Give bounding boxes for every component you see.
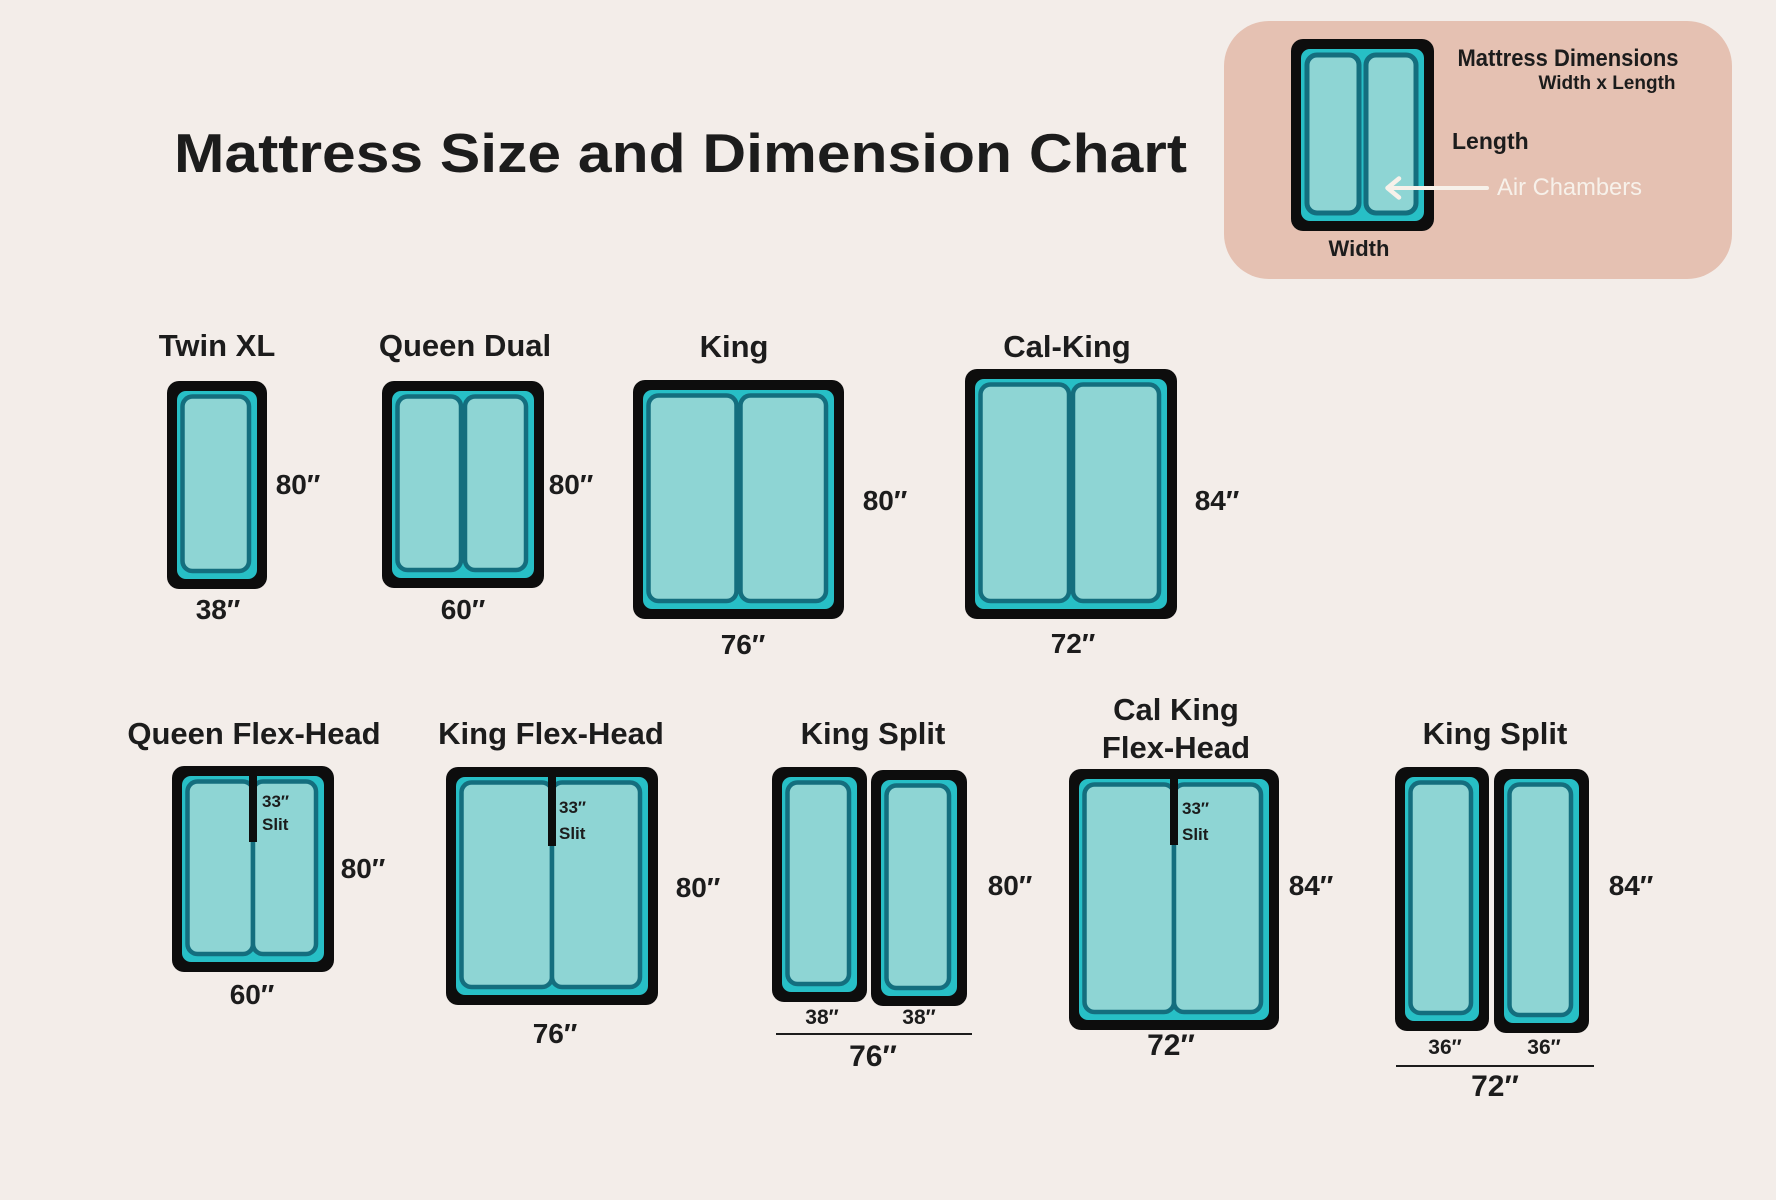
svg-text:80″: 80″ [341,853,386,884]
svg-text:Mattress Dimensions: Mattress Dimensions [1458,45,1679,72]
svg-text:33″: 33″ [1182,799,1209,818]
svg-text:33″: 33″ [559,798,586,817]
svg-text:38″: 38″ [902,1006,935,1029]
svg-text:Mattress Size and Dimension Ch: Mattress Size and Dimension Chart [174,122,1187,184]
svg-text:80″: 80″ [276,469,321,500]
svg-text:72″: 72″ [1051,628,1096,659]
svg-text:Width: Width [1329,236,1390,261]
svg-text:Twin XL: Twin XL [159,328,276,363]
svg-text:King Flex-Head: King Flex-Head [438,716,664,751]
svg-text:80″: 80″ [988,870,1033,901]
svg-text:Slit: Slit [1182,825,1209,844]
svg-text:Queen Flex-Head: Queen Flex-Head [127,716,380,751]
svg-text:72″: 72″ [1471,1070,1519,1103]
svg-text:76″: 76″ [533,1018,578,1049]
svg-text:76″: 76″ [849,1040,897,1073]
svg-text:60″: 60″ [441,594,486,625]
svg-text:Length: Length [1452,128,1529,154]
svg-text:84″: 84″ [1609,870,1654,901]
svg-text:King: King [700,329,769,364]
svg-text:36″: 36″ [1428,1036,1461,1059]
svg-text:80″: 80″ [676,872,721,903]
svg-text:33″: 33″ [262,792,289,811]
svg-text:38″: 38″ [805,1006,838,1029]
svg-text:60″: 60″ [230,979,275,1010]
svg-text:Cal-King: Cal-King [1003,329,1130,364]
svg-text:King Split: King Split [1423,716,1568,751]
svg-text:Queen Dual: Queen Dual [379,328,551,363]
svg-text:84″: 84″ [1289,870,1334,901]
svg-text:84″: 84″ [1195,485,1240,516]
svg-text:Cal King: Cal King [1113,692,1239,727]
svg-text:76″: 76″ [721,629,766,660]
svg-text:80″: 80″ [549,469,594,500]
svg-text:36″: 36″ [1527,1036,1560,1059]
svg-text:Air Chambers: Air Chambers [1497,174,1642,201]
svg-text:Flex-Head: Flex-Head [1102,730,1250,765]
svg-text:Slit: Slit [559,824,586,843]
svg-text:72″: 72″ [1147,1029,1195,1062]
svg-text:38″: 38″ [196,594,241,625]
svg-text:King Split: King Split [801,716,946,751]
svg-text:Width x Length: Width x Length [1538,73,1675,94]
svg-text:Slit: Slit [262,815,289,834]
svg-text:80″: 80″ [863,485,908,516]
